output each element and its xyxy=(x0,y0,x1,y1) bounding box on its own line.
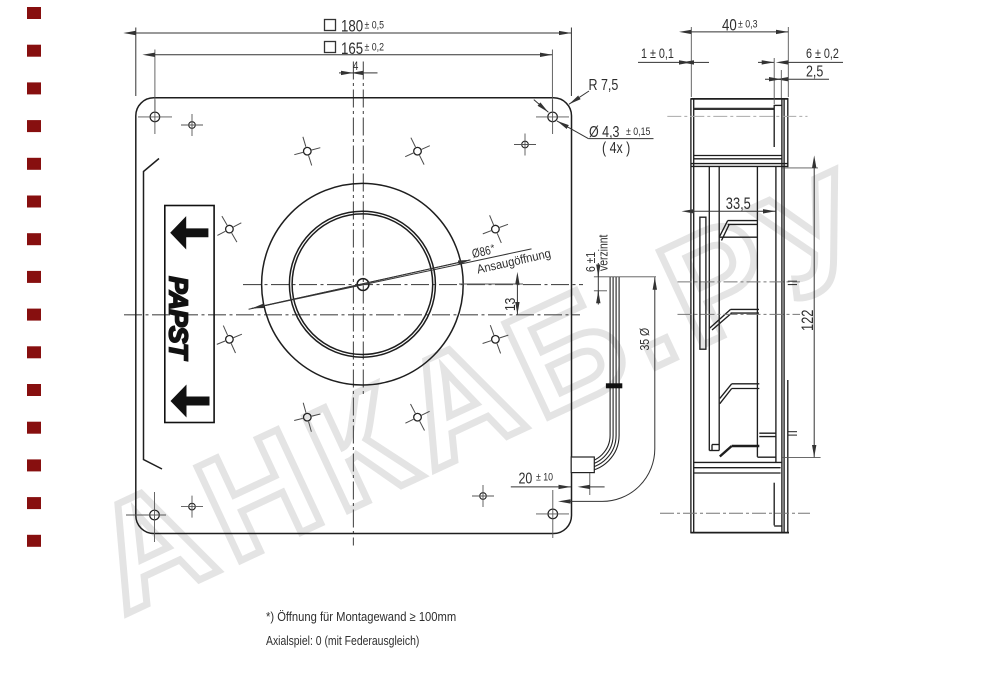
svg-text:± 0,3: ± 0,3 xyxy=(738,19,758,31)
svg-text:R 7,5: R 7,5 xyxy=(589,77,619,95)
svg-text:± 0,15: ± 0,15 xyxy=(626,126,651,138)
svg-text:180: 180 xyxy=(341,17,363,36)
svg-text:4: 4 xyxy=(353,60,358,73)
svg-text:( 4x ): ( 4x ) xyxy=(602,139,630,157)
svg-text:PAPST: PAPST xyxy=(164,276,194,361)
svg-text:*) Öffnung für Montagewand ≥ 1: *) Öffnung für Montagewand ≥ 100mm xyxy=(266,609,456,624)
svg-text:35 Ø: 35 Ø xyxy=(638,328,652,351)
svg-text:1 ± 0,1: 1 ± 0,1 xyxy=(641,46,674,61)
svg-text:АНКАБ.РУ: АНКАБ.РУ xyxy=(67,136,901,644)
svg-text:122: 122 xyxy=(800,310,818,331)
svg-text:± 10: ± 10 xyxy=(536,472,553,484)
svg-text:165: 165 xyxy=(341,40,363,59)
svg-text:verzinnt: verzinnt xyxy=(596,234,610,271)
svg-text:33,5: 33,5 xyxy=(726,196,751,214)
svg-text:Axialspiel: 0 (mit Federausgl: Axialspiel: 0 (mit Federausgleich) xyxy=(266,634,419,648)
svg-text:2,5: 2,5 xyxy=(806,63,823,81)
svg-text:13: 13 xyxy=(502,298,519,311)
svg-text:± 0,2: ± 0,2 xyxy=(365,42,385,54)
svg-text:40: 40 xyxy=(722,16,737,35)
svg-text:6 ± 0,2: 6 ± 0,2 xyxy=(806,46,839,61)
svg-text:20: 20 xyxy=(519,470,533,488)
svg-text:± 0,5: ± 0,5 xyxy=(365,20,385,32)
